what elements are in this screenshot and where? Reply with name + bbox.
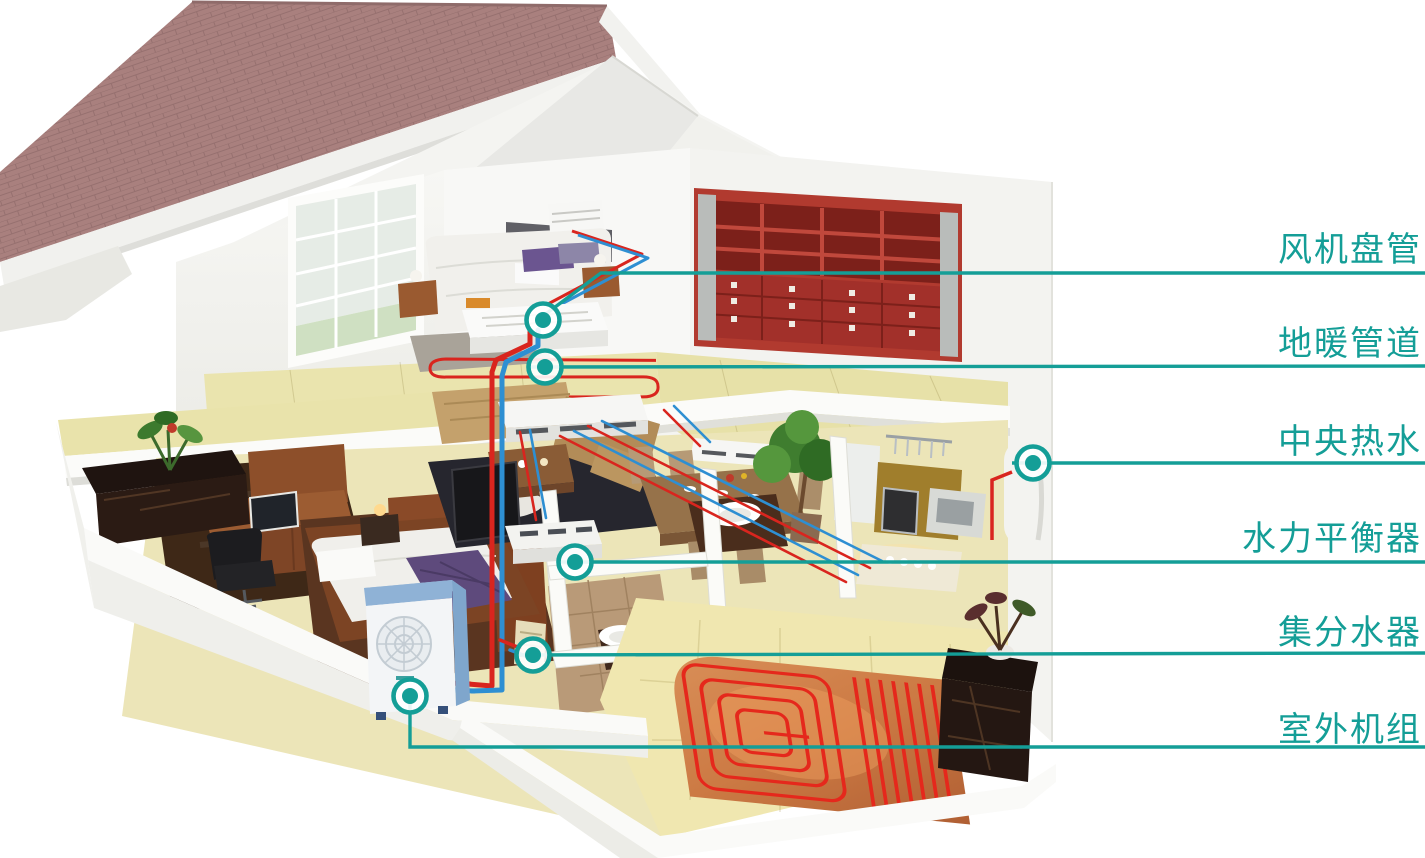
annotation-marker-dot-manifold <box>525 647 541 663</box>
desk-monitor <box>250 492 298 532</box>
annotation-marker-dot-fan-coil <box>535 312 551 328</box>
bed-pillows <box>316 546 376 582</box>
bookshelf-side-panel-left <box>698 194 716 341</box>
annotation-label-manifold: 集分水器 <box>1278 613 1422 653</box>
annotation-marker-dot-floor-heating-pipe <box>537 359 553 375</box>
annotation-line-floor-heating-pipe <box>527 366 1425 367</box>
nightstand <box>360 514 400 546</box>
annotation-line-manifold <box>516 653 1425 655</box>
annotation-label-fan-coil: 风机盘管 <box>1278 230 1422 270</box>
floor-heating-pad <box>668 652 970 825</box>
bookshelf-side-panel-right <box>940 212 958 357</box>
oven <box>882 488 918 534</box>
house-illustration: 风机盘管 地暖管道 中央热水 水力平衡器 集分水器 室外机组 <box>0 0 1425 858</box>
annotation-label-central-hot-water: 中央热水 <box>1278 422 1422 462</box>
unit-foot <box>438 706 448 714</box>
bedside-lamp <box>410 270 422 282</box>
unit-foot <box>376 712 386 720</box>
wall-fan-coil-unit <box>548 200 604 232</box>
annotation-label-floor-heating-pipe: 地暖管道 <box>1278 324 1422 364</box>
bedside-lamp <box>374 504 386 516</box>
red-bookshelf <box>694 188 962 362</box>
attic-window <box>288 174 424 368</box>
annotation-marker-dot-central-hot-water <box>1025 455 1041 471</box>
nightstand-left <box>398 280 438 318</box>
annotation-marker-dot-outdoor-unit <box>402 688 418 704</box>
annotation-label-hydraulic-balancer: 水力平衡器 <box>1242 519 1422 559</box>
sink-basin <box>936 498 974 526</box>
purple-pillow-2 <box>558 242 600 264</box>
bedside-lamp <box>594 254 606 266</box>
red-flower <box>167 423 177 433</box>
fan-grille <box>377 617 431 671</box>
annotation-label-outdoor-unit: 室外机组 <box>1278 710 1422 750</box>
annotation-marker-dot-hydraulic-balancer <box>567 554 583 570</box>
kitchen-island <box>856 544 962 592</box>
bed-tray <box>466 298 490 308</box>
hvac-cutaway-diagram: 风机盘管 地暖管道 中央热水 水力平衡器 集分水器 室外机组 <box>0 0 1425 858</box>
